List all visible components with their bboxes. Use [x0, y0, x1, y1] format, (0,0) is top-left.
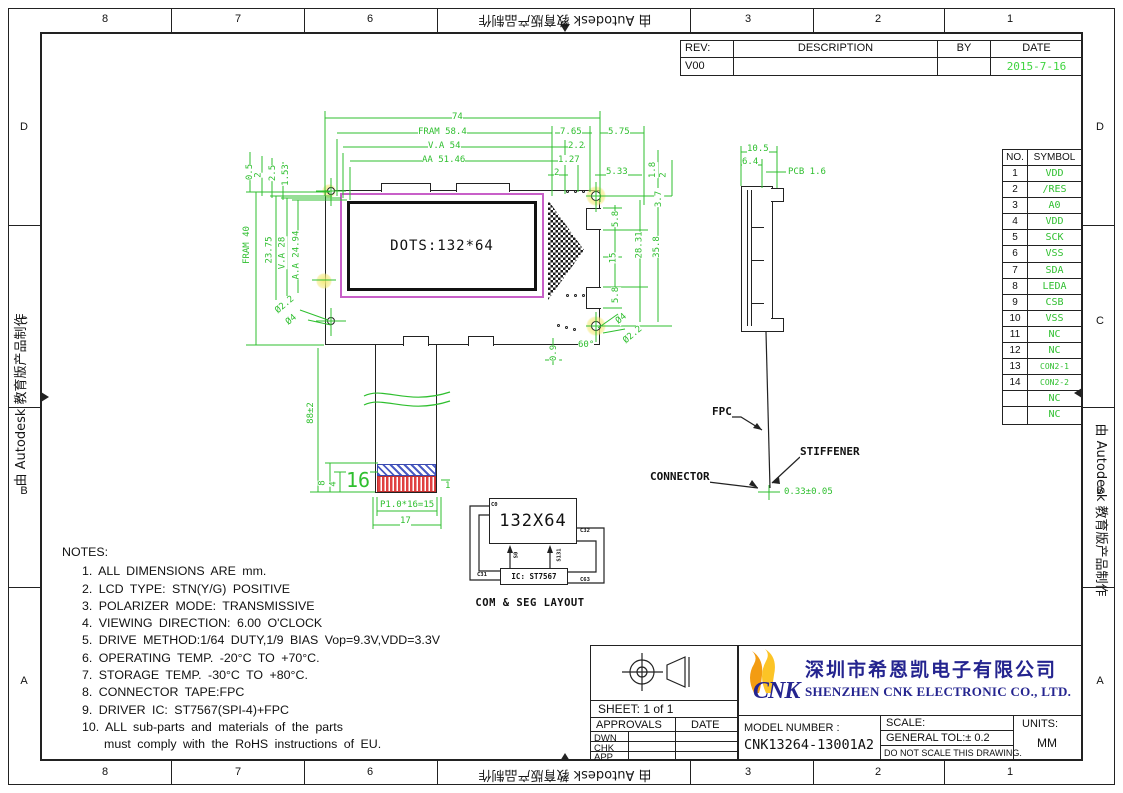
dim-label: 2.5	[268, 165, 278, 181]
dim-label: 1.53	[281, 164, 291, 186]
stiffener-callout: STIFFENER	[800, 445, 860, 458]
notes-title: NOTES:	[62, 544, 440, 561]
com-label: C32	[580, 528, 590, 534]
dim-label: 5.8	[611, 211, 621, 227]
fpc-callout: FPC	[712, 405, 732, 418]
note-item: 2. LCD TYPE: STN(Y/G) POSITIVE	[82, 581, 440, 598]
dim-label: 6.4	[742, 157, 758, 167]
dim-label: 2	[554, 168, 559, 178]
note-item: 1. ALL DIMENSIONS ARE mm.	[82, 563, 440, 580]
dim-label: PCB 1.6	[788, 167, 826, 177]
dim-label: 5.33	[606, 167, 628, 177]
dim-label: 1.8	[648, 162, 658, 178]
watermark-right: 由 Autodesk 教育版产品制作	[1090, 390, 1110, 630]
note-item: 10. ALL sub-parts and materials of the p…	[82, 719, 440, 736]
com-label: C0	[491, 502, 498, 508]
dim-label: 4	[329, 481, 339, 486]
dim-label: 2	[659, 172, 669, 177]
note-item: 9. DRIVER IC: ST7567(SPI-4)+FPC	[82, 702, 440, 719]
dim-label: 8	[318, 480, 328, 485]
note-item: 8. CONNECTOR TAPE:FPC	[82, 684, 440, 701]
watermark-bottom: 由 Autodesk 教育版产品制作	[430, 764, 700, 784]
seg-label: S131	[557, 548, 563, 561]
note-item-continuation: must comply with the RoHS instructions o…	[82, 736, 440, 753]
note-item: 6. OPERATING TEMP. -20°C TO +70°C.	[82, 650, 440, 667]
seg-label: S0	[513, 552, 519, 559]
dim-label: 28.31	[635, 231, 645, 258]
watermark-top: 由 Autodesk 教育版产品制作	[430, 9, 700, 29]
dim-label: 16	[346, 470, 370, 490]
dim-label: 60°	[578, 340, 594, 350]
dim-label: 15	[608, 253, 618, 264]
dim-label: 23.75	[265, 236, 275, 263]
dim-label: 88±2	[306, 402, 316, 424]
note-item: 3. POLARIZER MODE: TRANSMISSIVE	[82, 598, 440, 615]
dim-label: 1	[445, 481, 450, 491]
dim-label: 0.33±0.05	[784, 487, 833, 497]
com-label: C31	[477, 572, 487, 578]
dim-label: 5.75	[608, 127, 630, 137]
connector-callout: CONNECTOR	[650, 470, 710, 483]
dim-label: 74	[452, 112, 463, 122]
notes-block: NOTES: 1. ALL DIMENSIONS ARE mm. 2. LCD …	[62, 544, 440, 754]
dim-label: 35.8	[652, 236, 662, 258]
dim-label: FRAM 40	[242, 226, 252, 264]
dim-label: 10.5	[747, 144, 769, 154]
dim-label: FRAM 58.4	[418, 127, 467, 137]
dim-label: V.A 28	[277, 237, 287, 270]
note-item: 4. VIEWING DIRECTION: 6.00 O'CLOCK	[82, 615, 440, 632]
dim-label: 17	[400, 516, 411, 526]
fpc-break-wave	[362, 386, 452, 414]
cad-drawing-page: { "watermark": "由 Autodesk 教育版产品制作", "fr…	[0, 0, 1123, 793]
dim-label: V.A 54	[428, 141, 461, 151]
dim-label: 1.27	[558, 155, 580, 165]
dim-label: 3.7	[654, 191, 664, 207]
dim-label: 5.8	[611, 287, 621, 303]
dim-label: 2	[254, 172, 264, 177]
com-label: C63	[580, 577, 590, 583]
dim-label: 2.2	[568, 141, 584, 151]
dim-label: 0.9	[549, 345, 559, 361]
cnk-logo-text: CNK	[753, 678, 799, 705]
dim-label: A.A 24.94	[291, 231, 301, 280]
watermark-left: 由 Autodesk 教育版产品制作	[12, 280, 32, 520]
note-item: 7. STORAGE TEMP. -30°C TO +80°C.	[82, 667, 440, 684]
dim-label: AA 51.46	[422, 155, 465, 165]
note-item: 5. DRIVE METHOD:1/64 DUTY,1/9 BIAS Vop=9…	[82, 632, 440, 649]
dim-label: 7.65	[560, 127, 582, 137]
dim-label: P1.0*16=15	[380, 500, 434, 510]
